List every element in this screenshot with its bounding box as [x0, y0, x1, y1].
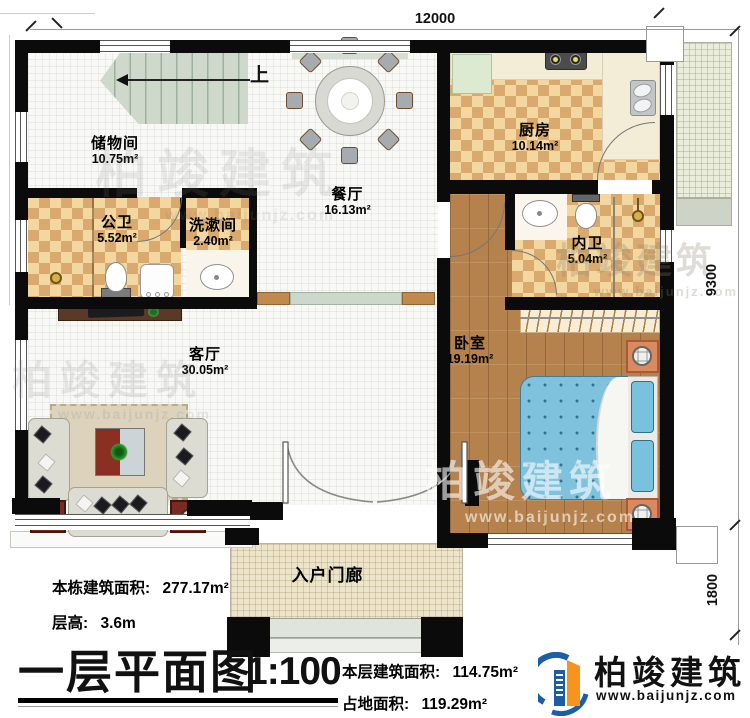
wall-segment — [250, 502, 283, 520]
dining-chair — [286, 92, 303, 109]
window — [15, 340, 28, 430]
threshold-center — [290, 292, 402, 305]
company-logo-icon — [538, 652, 590, 716]
entrance-double-door — [280, 440, 470, 508]
fridge — [452, 54, 492, 94]
room-label-bedroom: 卧室19.19m² — [425, 335, 515, 367]
inner-toilet — [575, 203, 597, 229]
window — [15, 514, 250, 530]
floor-height-note: 层高: 3.6m — [52, 611, 136, 633]
nightstand-lamp — [632, 346, 652, 366]
shower-hose — [637, 198, 639, 212]
room-label-porch: 入户门廊 — [270, 566, 385, 586]
floor-area-note: 本层建筑面积: 114.75m² — [342, 660, 518, 682]
room-label-dining: 餐厅16.13m² — [300, 186, 395, 218]
dining-chair — [341, 147, 358, 164]
window — [488, 533, 632, 548]
dining-chair — [396, 92, 413, 109]
dimension-line-top — [30, 29, 740, 30]
window — [660, 65, 674, 115]
room-label-washroom: 洗漱间2.40m² — [168, 217, 258, 249]
window — [290, 40, 410, 53]
dimension-porch: 1800 — [705, 563, 721, 617]
stove-burner — [570, 54, 581, 65]
bed-pillow — [631, 440, 654, 492]
wall-segment — [437, 192, 450, 202]
land-area-label: 占地面积: — [342, 696, 409, 713]
dining-table-center — [341, 92, 359, 110]
site-line — [0, 13, 95, 14]
room-label-storage: 储物间10.75m² — [60, 135, 170, 167]
floor-height-value: 3.6m — [100, 615, 135, 632]
title-underline-thick — [18, 698, 338, 703]
company-logo-name: 柏竣建筑 — [594, 646, 746, 694]
wall-segment — [437, 52, 450, 188]
floor-height-label: 层高: — [52, 615, 88, 632]
wall-segment — [437, 180, 598, 194]
wall-column-outline — [646, 26, 684, 62]
wall-segment — [15, 40, 28, 112]
wall-segment — [437, 533, 488, 548]
stair-arrow-icon — [116, 74, 128, 86]
room-label-living: 客厅30.05m² — [160, 346, 250, 378]
window — [660, 230, 674, 262]
wall-segment — [28, 297, 257, 309]
wall-segment — [15, 162, 28, 220]
coffee-table-plant — [110, 443, 128, 461]
inner-bath-sink-drain — [537, 211, 542, 216]
terrace-right — [676, 42, 732, 198]
title-underline-thin — [18, 706, 338, 707]
wall-segment — [505, 194, 515, 250]
window — [15, 220, 28, 272]
wall-segment — [187, 500, 252, 516]
wall-segment — [28, 188, 137, 198]
porch-pillar — [225, 528, 259, 545]
room-label-kitchen: 厨房10.14m² — [485, 122, 585, 154]
wall-segment — [505, 297, 660, 310]
room-label-inner-bath: 内卫5.04m² — [540, 235, 635, 267]
floor-area-label: 本层建筑面积: — [342, 664, 440, 681]
wardrobe-rail — [520, 317, 660, 319]
inner-toilet-tank — [572, 194, 600, 202]
dimension-tick — [51, 17, 62, 28]
bed-pillow — [631, 381, 654, 433]
dimension-height: 9300 — [704, 250, 720, 310]
wall-segment — [20, 40, 100, 53]
land-area-value: 119.29m² — [421, 696, 487, 713]
wall-segment — [170, 40, 290, 53]
terrace-edge — [676, 198, 732, 226]
threshold-left — [257, 292, 290, 305]
washroom-sink-drain — [214, 275, 219, 280]
threshold-right — [402, 292, 435, 305]
company-logo-website: www.baijunjz.com — [596, 688, 737, 703]
stair-up-label: 上 — [250, 60, 269, 87]
wall-segment — [182, 188, 253, 198]
page-title: 一层平面图 — [18, 636, 258, 702]
wall-segment — [15, 272, 28, 340]
wall-segment — [652, 180, 660, 194]
dimension-line-right — [738, 30, 739, 645]
stove-burner — [550, 54, 561, 65]
window — [100, 40, 170, 53]
floor-area-value: 114.75m² — [452, 664, 518, 681]
floor-drain — [50, 272, 62, 284]
wall-segment — [12, 498, 60, 514]
toilet — [105, 262, 127, 292]
stair-direction-line — [128, 79, 250, 81]
building-area-label: 本栋建筑面积: — [52, 580, 150, 597]
land-area-note: 占地面积: 119.29m² — [342, 692, 487, 714]
wall-column-outline — [676, 526, 718, 564]
wall-segment — [660, 115, 674, 230]
porch-step-1 — [266, 618, 423, 638]
building-area-value: 277.17m² — [162, 580, 228, 597]
room-label-public-bath: 公卫5.52m² — [72, 214, 162, 246]
scale-value: 1:100 — [246, 650, 341, 694]
site-line — [9, 35, 10, 305]
floor-plan-page: 上 — [0, 0, 750, 718]
porch-pillar — [421, 617, 463, 657]
dimension-tick — [653, 7, 664, 18]
dimension-width: 12000 — [400, 11, 470, 27]
wall-segment — [15, 430, 28, 500]
window — [15, 112, 28, 162]
shower-screen-line — [92, 197, 94, 297]
building-area-note: 本栋建筑面积: 277.17m² — [52, 576, 229, 598]
wall-segment — [660, 262, 674, 535]
